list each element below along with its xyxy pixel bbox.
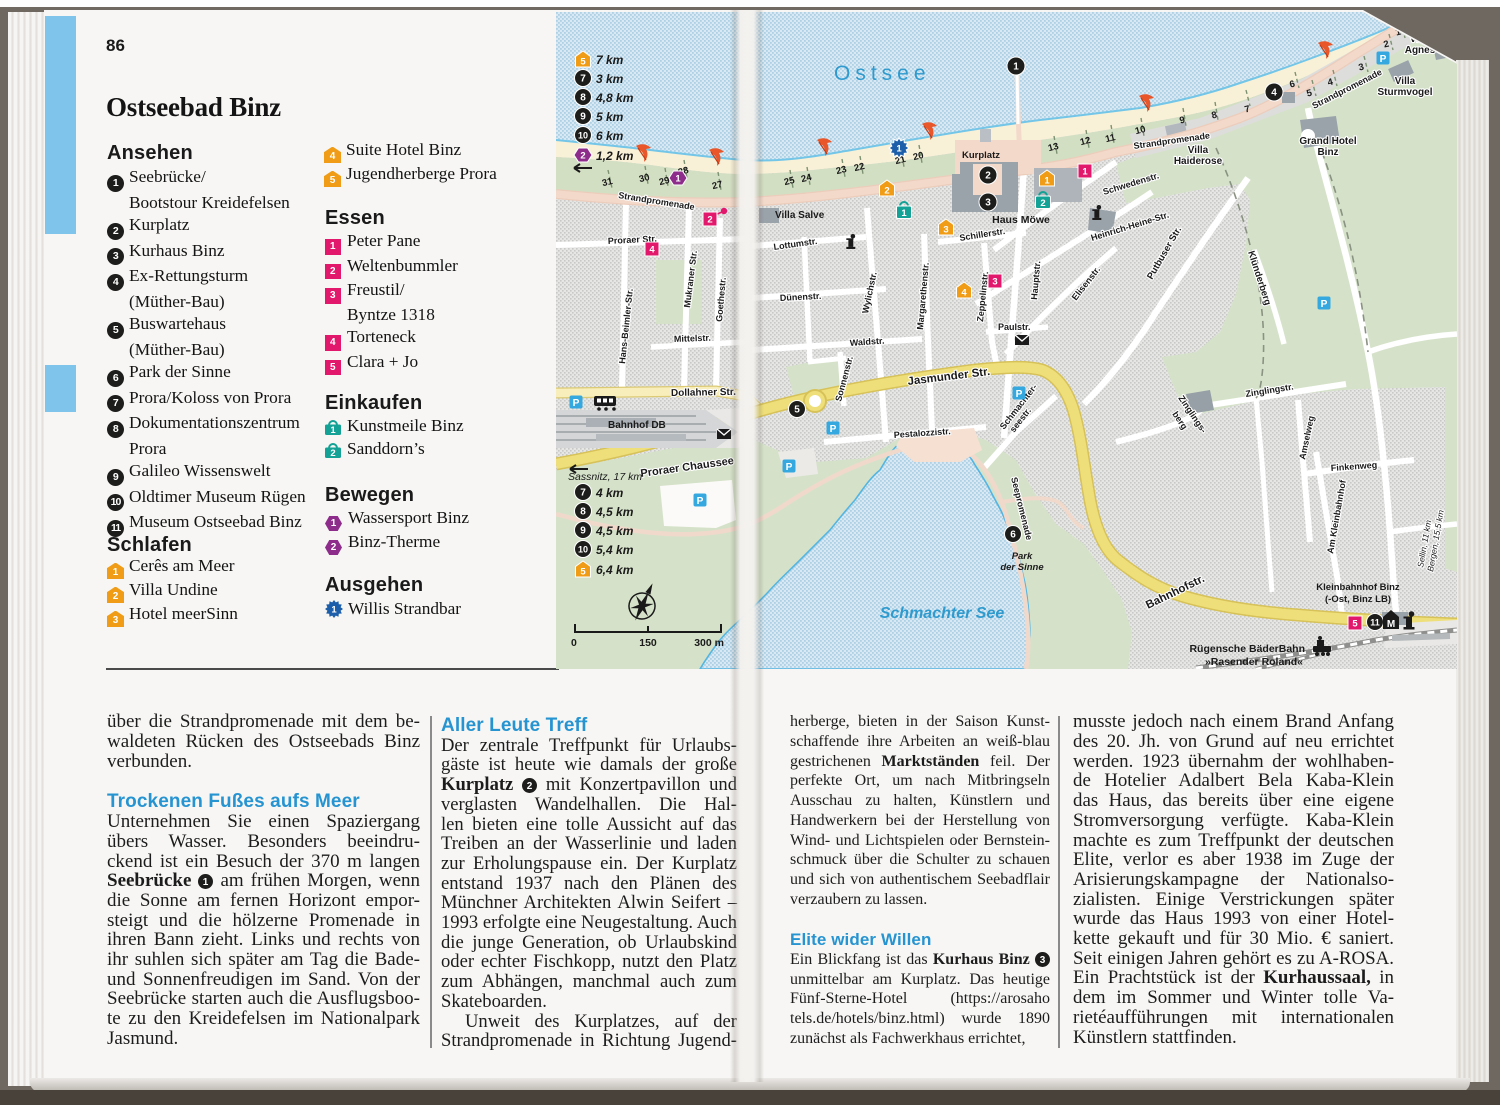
svg-text:Ostsee: Ostsee [834,62,931,85]
svg-text:Villa Salve: Villa Salve [775,210,825,221]
svg-text:1: 1 [330,425,336,435]
svg-text:(-Ost, Binz LB): (-Ost, Binz LB) [1325,594,1391,605]
svg-text:P: P [1321,299,1328,310]
svg-text:2: 2 [985,170,991,181]
svg-text:3: 3 [943,225,948,236]
svg-text:1: 1 [1082,167,1088,178]
svg-text:4: 4 [649,245,655,256]
svg-text:M: M [1387,619,1395,630]
svg-text:P: P [1016,389,1023,400]
svg-text:4 km: 4 km [595,486,624,500]
svg-text:Sturmvogel: Sturmvogel [1377,87,1432,98]
svg-text:300 m: 300 m [694,637,724,649]
svg-text:7 km: 7 km [596,53,624,67]
svg-text:»Rasender Roland«: »Rasender Roland« [1205,656,1303,668]
svg-text:3: 3 [1040,955,1046,966]
svg-text:P: P [697,496,704,507]
svg-text:Bahnhof DB: Bahnhof DB [608,420,666,431]
svg-text:5: 5 [580,57,586,68]
svg-text:4: 4 [961,288,967,299]
svg-text:0: 0 [571,637,577,649]
svg-text:2: 2 [527,781,533,792]
svg-text:Schmachter See: Schmachter See [880,605,1005,622]
svg-text:3: 3 [985,197,991,208]
svg-text:8: 8 [580,92,586,103]
svg-text:Dollahner Str.: Dollahner Str. [671,387,736,399]
svg-text:Binz: Binz [1317,147,1338,158]
svg-text:7: 7 [580,73,586,84]
svg-text:2: 2 [580,151,585,162]
svg-text:3 km: 3 km [596,72,624,86]
svg-text:10: 10 [578,130,588,140]
svg-text:der Sinne: der Sinne [1000,562,1044,573]
svg-text:Haiderose: Haiderose [1174,156,1223,167]
svg-text:Kleinbahnhof Binz: Kleinbahnhof Binz [1316,582,1400,593]
svg-text:11: 11 [1370,617,1380,627]
svg-text:1: 1 [896,144,902,155]
svg-text:5: 5 [580,567,586,578]
svg-text:1: 1 [1044,176,1050,187]
svg-text:1: 1 [203,877,209,888]
svg-text:2: 2 [330,448,335,458]
svg-text:Agnes: Agnes [1405,45,1436,56]
svg-text:Rügensche BäderBahn: Rügensche BäderBahn [1189,643,1305,655]
svg-text:5: 5 [794,404,800,415]
svg-text:4,8 km: 4,8 km [595,91,634,105]
svg-text:1,2 km: 1,2 km [596,149,634,163]
svg-text:1: 1 [331,605,337,616]
svg-text:Villa: Villa [1188,145,1209,156]
svg-text:6,4 km: 6,4 km [596,563,634,577]
svg-text:10: 10 [578,544,588,554]
svg-text:1: 1 [901,208,907,219]
svg-text:Haus Möwe: Haus Möwe [992,214,1050,226]
svg-text:P: P [573,398,580,409]
svg-text:9: 9 [580,525,586,536]
svg-text:2: 2 [884,186,889,197]
svg-text:Kurplatz: Kurplatz [962,150,1000,161]
svg-text:3: 3 [992,277,997,288]
svg-text:8: 8 [580,506,586,517]
svg-text:9: 9 [580,111,586,122]
svg-text:4: 4 [1271,87,1277,98]
svg-text:P: P [1380,54,1387,65]
svg-text:6: 6 [1010,529,1016,540]
svg-text:4,5 km: 4,5 km [595,505,634,519]
svg-text:2: 2 [1040,198,1045,209]
svg-text:5: 5 [1352,619,1358,630]
svg-text:Sassnitz, 17 km: Sassnitz, 17 km [568,471,642,483]
svg-text:Villa: Villa [1410,34,1431,45]
svg-text:Paulstr.: Paulstr. [998,322,1031,332]
svg-text:5 km: 5 km [596,110,624,124]
svg-text:Villa: Villa [1395,76,1416,87]
svg-text:1: 1 [675,174,681,185]
svg-text:4,5 km: 4,5 km [595,524,634,538]
svg-text:6 km: 6 km [596,129,624,143]
svg-text:P: P [830,424,837,435]
svg-text:2: 2 [707,215,712,226]
svg-text:1: 1 [1013,61,1019,72]
svg-text:P: P [786,462,793,473]
svg-text:1: 1 [1394,26,1402,38]
svg-text:150: 150 [639,637,657,649]
svg-text:7: 7 [580,487,586,498]
svg-text:5,4 km: 5,4 km [596,543,634,557]
svg-text:Mittelstr.: Mittelstr. [674,333,711,344]
svg-text:Grand Hotel: Grand Hotel [1299,136,1356,147]
svg-text:Park: Park [1012,551,1033,562]
